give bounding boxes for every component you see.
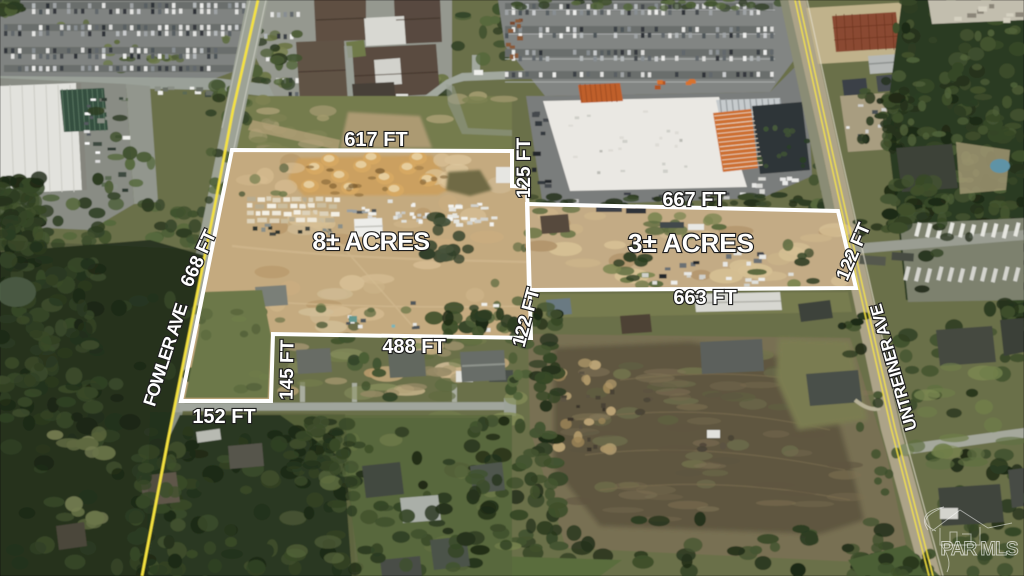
svg-text:488 FT: 488 FT: [382, 336, 445, 358]
svg-text:667 FT: 667 FT: [662, 189, 725, 211]
svg-text:PAR MLS: PAR MLS: [940, 539, 1017, 560]
svg-text:3± ACRES: 3± ACRES: [628, 228, 754, 258]
svg-text:145 FT: 145 FT: [276, 339, 298, 400]
svg-text:617 FT: 617 FT: [344, 129, 407, 151]
svg-text:125 FT: 125 FT: [514, 138, 535, 199]
svg-text:663 FT: 663 FT: [673, 287, 736, 309]
svg-text:152 FT: 152 FT: [192, 406, 255, 428]
svg-text:8± ACRES: 8± ACRES: [312, 228, 429, 256]
